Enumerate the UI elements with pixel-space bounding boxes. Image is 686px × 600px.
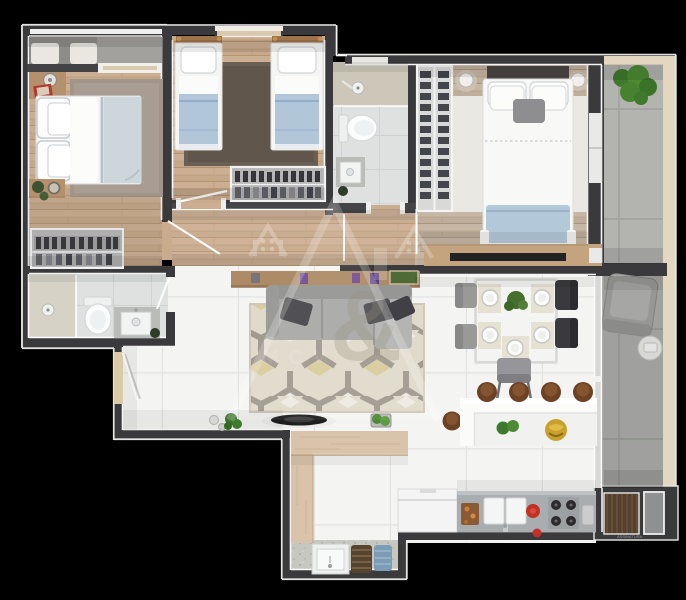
svg-text:ASSINATURA: ASSINATURA [617,534,643,539]
svg-text:MCV: MCV [262,347,336,369]
